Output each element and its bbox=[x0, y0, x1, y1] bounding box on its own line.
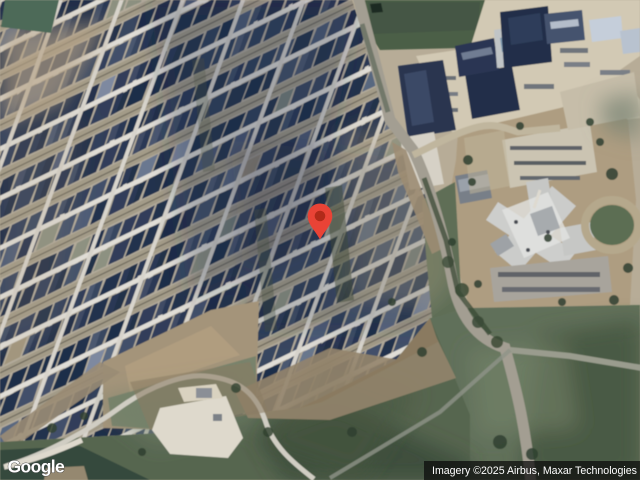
svg-text:Google: Google bbox=[8, 457, 66, 477]
svg-text:Imagery ©2025 Airbus, Maxar Te: Imagery ©2025 Airbus, Maxar Technologies bbox=[432, 465, 637, 477]
